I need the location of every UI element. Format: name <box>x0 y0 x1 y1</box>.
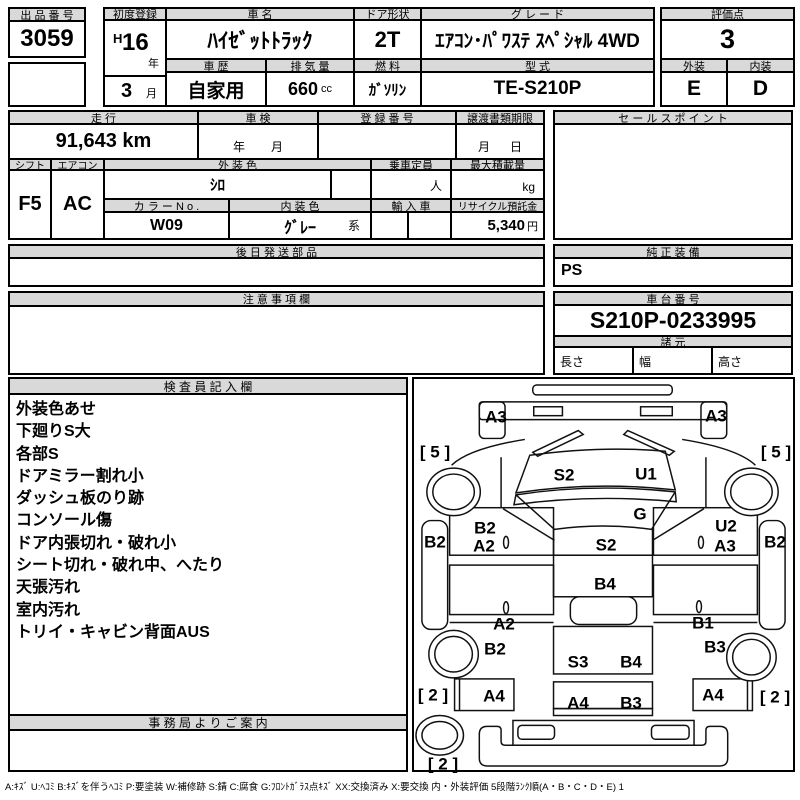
fuel-label: 燃 料 <box>355 60 422 73</box>
inspector-note: ドアミラー割れ小 <box>16 466 402 488</box>
damage-code-labels: A3A3S2U1GS2B2A2U2A3B2B2[ 5 ][ 5 ]B4A2B1B… <box>414 379 793 770</box>
exterior-color-extra-cell <box>332 171 372 200</box>
equipment-label: 純 正 装 備 <box>555 246 791 259</box>
score-box: 評価点 3 外装 内装 E D <box>660 7 795 107</box>
interior-grade-value: D <box>728 73 793 105</box>
max-load-unit: kg <box>522 180 535 194</box>
transfer-deadline-label: 譲渡書類期限 <box>457 112 543 125</box>
damage-code-label: S2 <box>596 537 617 554</box>
shift-value: F5 <box>10 171 52 238</box>
damage-code-label: [ 2 ] <box>760 689 790 706</box>
aircon-value: AC <box>52 171 105 238</box>
lot-number-box: 出 品 番 号 3059 <box>8 7 86 58</box>
door-shape-value: 2T <box>355 21 422 60</box>
exterior-color-label: 外 装 色 <box>105 158 372 171</box>
first-registration-value: H 16 年 <box>105 21 167 75</box>
damage-code-label: B2 <box>484 641 506 658</box>
capacity-value: 人 <box>372 171 452 200</box>
import-value <box>372 213 452 238</box>
displacement-value: 660 cc <box>267 73 355 105</box>
chassis-number-label: 車 台 番 号 <box>555 293 791 306</box>
lot-number-label: 出 品 番 号 <box>10 9 84 22</box>
recycle-deposit-value: 5,340 円 <box>452 213 543 238</box>
damage-diagram-box: A3A3S2U1GS2B2A2U2A3B2B2[ 5 ][ 5 ]B4A2B1B… <box>412 377 795 772</box>
sales-point-value <box>555 125 791 238</box>
inspector-note: ドア内張切れ・破れ小 <box>16 533 402 555</box>
damage-code-label: U1 <box>635 466 657 483</box>
year-suffix: 年 <box>148 55 159 71</box>
damage-code-label: A3 <box>485 409 507 426</box>
auction-sheet: 出 品 番 号 3059 初度登録 車 名 ドア形状 グ レ ー ド H 16 … <box>0 0 800 800</box>
damage-code-label: A4 <box>702 687 724 704</box>
damage-code-label: B3 <box>704 639 726 656</box>
legend-footer: A:ｷｽﾞ U:ﾍｺﾐ B:ｷｽﾞを伴うﾍｺﾐ P:要塗装 W:補修跡 S:錆 … <box>5 779 797 793</box>
era-code: H <box>113 31 122 46</box>
car-name-value: ﾊｲｾﾞｯﾄﾄﾗｯｸ <box>167 21 355 60</box>
spec-height-label: 高さ <box>713 348 791 373</box>
mileage-label: 走 行 <box>10 112 199 125</box>
model-code-label: 型 式 <box>422 60 653 73</box>
registration-number-value <box>319 125 457 158</box>
displacement-unit: cc <box>321 83 332 95</box>
shaken-value: 年 月 <box>199 125 319 158</box>
damage-code-label: B2 <box>764 534 786 551</box>
score-label: 評価点 <box>662 9 793 21</box>
import-label: 輸 入 車 <box>372 200 452 213</box>
recycle-amount: 5,340 <box>487 217 525 234</box>
damage-code-label: G <box>633 506 646 523</box>
color-no-label: カ ラ ー N o . <box>105 200 230 213</box>
inspector-note: ダッシュ板のり跡 <box>16 488 402 510</box>
interior-color-value: ｸﾞﾚｰ 系 <box>230 213 372 238</box>
first-registration-label: 初度登録 <box>105 9 167 21</box>
mileage-value: 91,643 km <box>10 125 199 158</box>
transfer-deadline-value: 月 日 <box>457 125 543 158</box>
inspector-note: シート切れ・破れ中、へたり <box>16 555 402 577</box>
inspector-note: 下廻りS大 <box>16 421 402 443</box>
import-cell-divider <box>407 213 409 238</box>
registration-month: 3 <box>121 80 132 103</box>
damage-code-label: A4 <box>483 688 505 705</box>
inspector-note: トリイ・キャビン背面AUS <box>16 622 402 644</box>
info-table: 走 行 車 検 登 録 番 号 譲渡書類期限 91,643 km 年 月 月 日… <box>8 110 545 240</box>
exterior-grade-label: 外装 <box>662 60 728 73</box>
shaken-year-unit: 年 <box>233 138 245 155</box>
fuel-value: ｶﾞｿﾘﾝ <box>355 73 422 105</box>
damage-code-label: B2 <box>424 534 446 551</box>
chassis-box: 車 台 番 号 S210P-0233995 諸 元 長さ 幅 高さ <box>553 291 793 375</box>
caution-box: 注 意 事 項 欄 <box>8 291 545 375</box>
inspector-note: 室内汚れ <box>16 600 402 622</box>
damage-code-label: A3 <box>705 408 727 425</box>
displacement-label: 排 気 量 <box>267 60 355 73</box>
inspector-note: 天張汚れ <box>16 577 402 599</box>
inspector-notes-list: 外装色あせ下廻りS大各部Sドアミラー割れ小ダッシュ板のり跡コンソール傷ドア内張切… <box>16 399 402 711</box>
equipment-box: 純 正 装 備 PS <box>553 244 793 287</box>
lot-number-value: 3059 <box>10 22 84 56</box>
damage-code-label: B4 <box>620 654 642 671</box>
door-shape-label: ドア形状 <box>355 9 422 21</box>
capacity-label: 乗車定員 <box>372 158 452 171</box>
office-notice-value <box>10 731 406 770</box>
damage-code-label: A2 <box>473 538 495 555</box>
shaken-label: 車 検 <box>199 112 319 125</box>
later-parts-box: 後 日 発 送 部 品 <box>8 244 545 287</box>
history-label: 車 歴 <box>167 60 267 73</box>
capacity-unit: 人 <box>430 177 442 194</box>
caution-value <box>10 307 543 373</box>
grade-value: ｴｱｺﾝ･ﾊﾟﾜｽﾃ ｽﾍﾟｼｬﾙ 4WD <box>422 21 653 60</box>
damage-code-label: [ 2 ] <box>428 756 458 773</box>
max-load-value: kg <box>452 171 543 200</box>
exterior-color-value: ｼﾛ <box>105 171 332 200</box>
damage-code-label: B2 <box>474 520 496 537</box>
inspector-note: 外装色あせ <box>16 399 402 421</box>
month-suffix: 月 <box>146 85 157 101</box>
spec-width-label: 幅 <box>634 348 713 373</box>
damage-code-label: A3 <box>714 538 736 555</box>
registration-year: 16 <box>122 29 149 57</box>
damage-code-label: S3 <box>568 654 589 671</box>
recycle-unit: 円 <box>527 218 538 234</box>
inspector-note: コンソール傷 <box>16 510 402 532</box>
damage-code-label: S2 <box>554 467 575 484</box>
aircon-label: エアコン <box>52 158 105 171</box>
shift-label: シフト <box>10 158 52 171</box>
lot-empty-box <box>8 62 86 107</box>
exterior-grade-value: E <box>662 73 728 105</box>
damage-code-label: A4 <box>567 695 589 712</box>
damage-code-label: B1 <box>692 615 714 632</box>
registration-month-cell: 3 月 <box>105 75 167 105</box>
deadline-month-unit: 月 <box>478 138 490 155</box>
sales-point-box: セ ー ル ス ポ イ ン ト <box>553 110 793 240</box>
interior-color-label: 内 装 色 <box>230 200 372 213</box>
inspector-label: 検 査 員 記 入 欄 <box>10 379 406 395</box>
interior-color-name: ｸﾞﾚｰ <box>284 214 316 238</box>
damage-code-label: B3 <box>620 695 642 712</box>
sales-point-label: セ ー ル ス ポ イ ン ト <box>555 112 791 125</box>
interior-grade-label: 内装 <box>728 60 793 73</box>
max-load-label: 最大積載量 <box>452 158 543 171</box>
chassis-number-value: S210P-0233995 <box>555 306 791 335</box>
grade-label: グ レ ー ド <box>422 9 653 21</box>
model-code-value: TE-S210P <box>422 73 653 105</box>
later-parts-label: 後 日 発 送 部 品 <box>10 246 543 259</box>
color-no-value: W09 <box>105 213 230 238</box>
damage-code-label: U2 <box>715 518 737 535</box>
office-notice-label: 事 務 局 よ り ご 案 内 <box>10 714 406 731</box>
inspector-note: 各部S <box>16 444 402 466</box>
deadline-day-unit: 日 <box>510 138 522 155</box>
equipment-value: PS <box>555 259 791 285</box>
damage-code-label: B4 <box>594 576 616 593</box>
later-parts-value <box>10 259 543 285</box>
spec-length-label: 長さ <box>555 348 634 373</box>
registration-number-label: 登 録 番 号 <box>319 112 457 125</box>
specs-label: 諸 元 <box>555 335 791 348</box>
score-value: 3 <box>662 21 793 60</box>
damage-code-label: [ 5 ] <box>761 444 791 461</box>
interior-color-suffix: 系 <box>348 217 360 234</box>
history-value: 自家用 <box>167 73 267 105</box>
caution-label: 注 意 事 項 欄 <box>10 293 543 307</box>
inspector-box: 検 査 員 記 入 欄 外装色あせ下廻りS大各部Sドアミラー割れ小ダッシュ板のり… <box>8 377 408 772</box>
damage-code-label: [ 2 ] <box>418 687 448 704</box>
title-table: 初度登録 車 名 ドア形状 グ レ ー ド H 16 年 ﾊｲｾﾞｯﾄﾄﾗｯｸ … <box>103 7 655 107</box>
damage-code-label: [ 5 ] <box>420 444 450 461</box>
car-name-label: 車 名 <box>167 9 355 21</box>
shaken-month-unit: 月 <box>271 138 283 155</box>
damage-code-label: A2 <box>493 616 515 633</box>
displacement-number: 660 <box>288 79 318 100</box>
recycle-deposit-label: リサイクル預託金 <box>452 200 543 213</box>
